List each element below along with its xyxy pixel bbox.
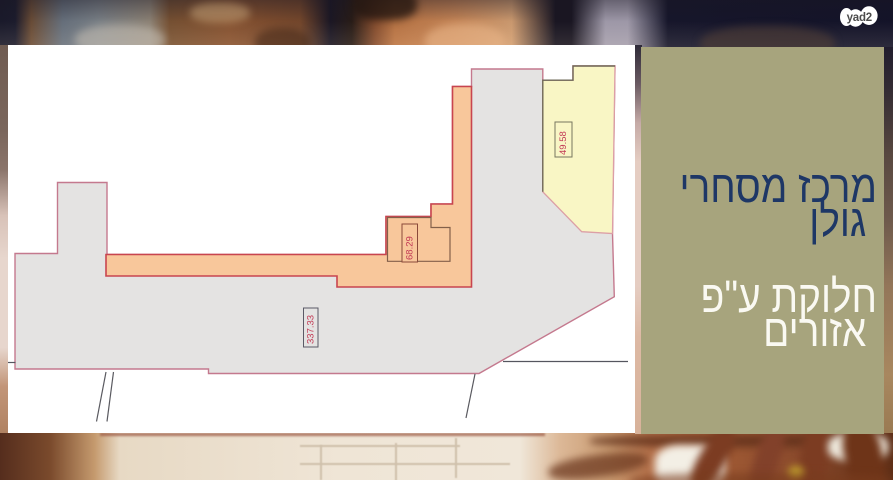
svg-text:68.29: 68.29 <box>405 236 416 260</box>
svg-text:337.33: 337.33 <box>306 315 317 344</box>
svg-text:yad2: yad2 <box>847 12 872 24</box>
svg-text:49.58: 49.58 <box>558 131 569 155</box>
